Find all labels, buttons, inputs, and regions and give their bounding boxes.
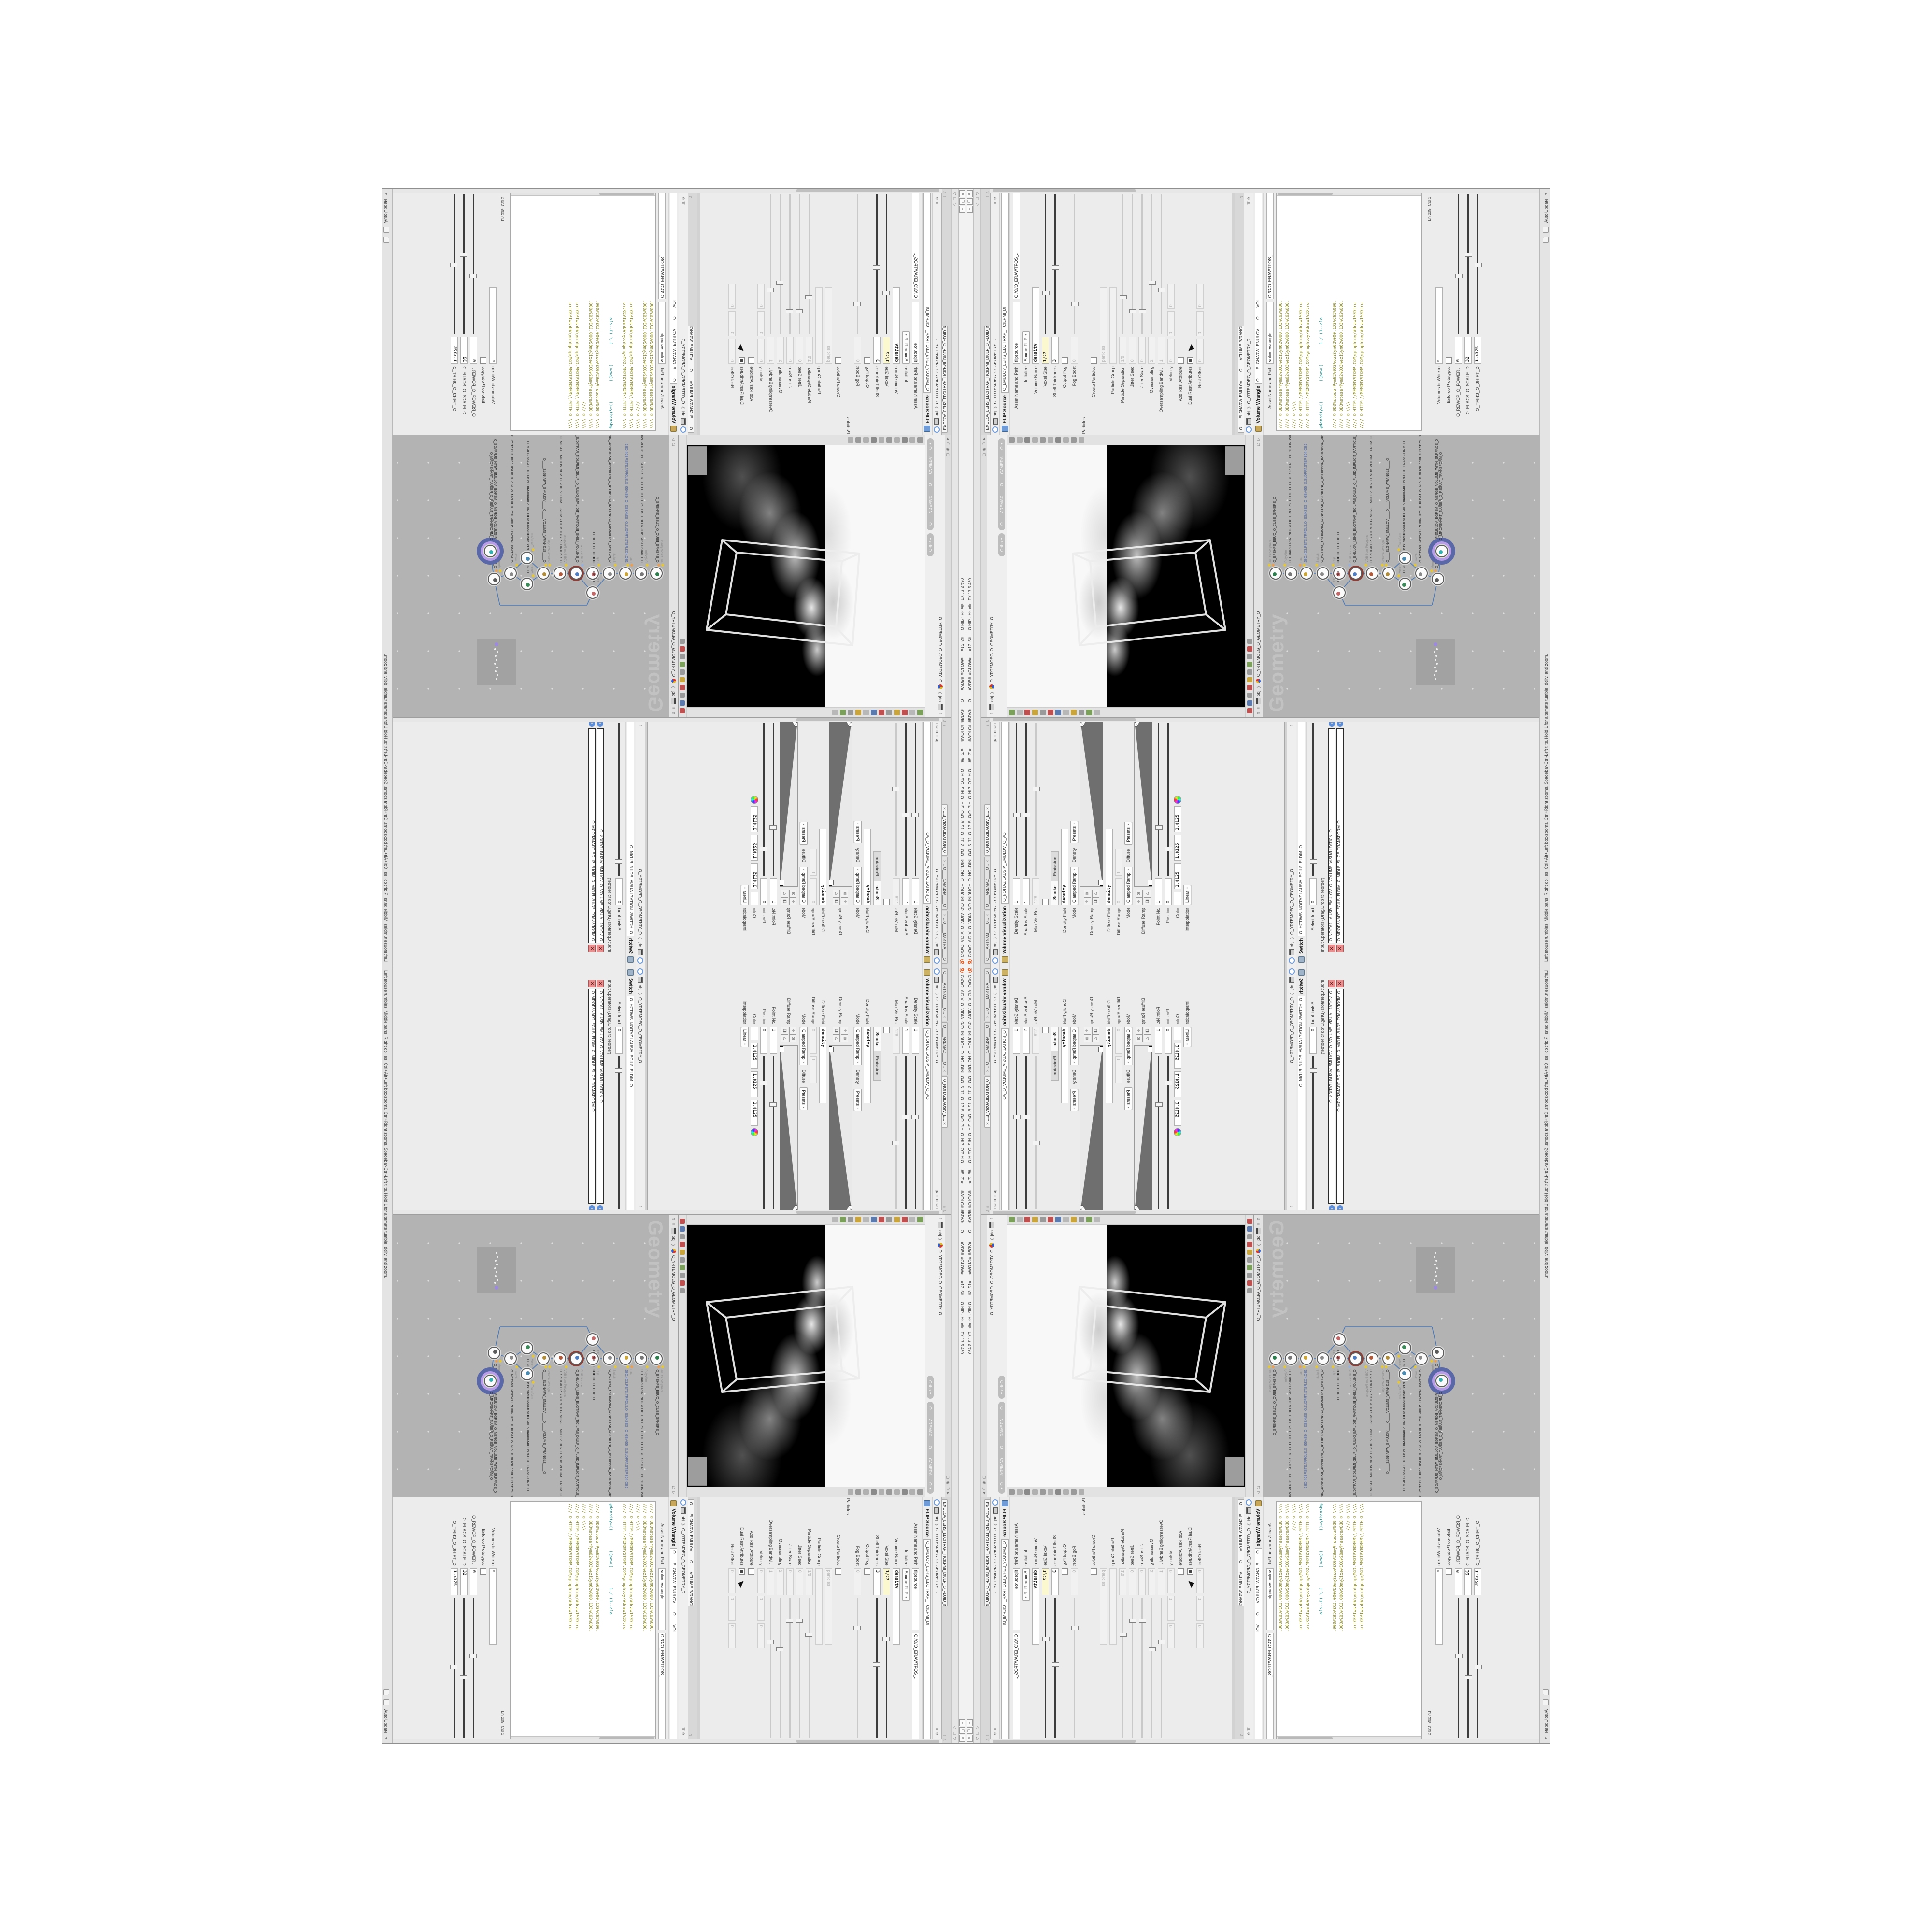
- up-arrow-icon[interactable]: ⇧: [639, 724, 643, 727]
- param-field[interactable]: density: [1106, 1027, 1113, 1103]
- pane-play-icon[interactable]: ▶: [946, 1492, 951, 1494]
- viewport-tool-icon[interactable]: [1032, 710, 1038, 715]
- window-titlebar[interactable]: C:/O/O_AIDIV_O_VIDIA_O/O_INIDUOH_O_HOUDI…: [966, 966, 974, 1743]
- ramp-button[interactable]: ✛: [1084, 897, 1091, 905]
- viewport-tool-icon[interactable]: [863, 1217, 869, 1222]
- param-field[interactable]: 1.8125: [751, 1071, 758, 1097]
- param-field[interactable]: 0: [758, 284, 765, 309]
- window-titlebar[interactable]: C:/O/O_AIDIV_O_VIDIA_O/O_INIDUOH_O_HOUDI…: [958, 966, 966, 1743]
- param-slider[interactable]: [1045, 194, 1046, 334]
- param-field[interactable]: 1: [912, 878, 920, 905]
- viewport-tool-icon[interactable]: [871, 710, 877, 715]
- viewport-playbar-icon[interactable]: [1247, 677, 1252, 682]
- tab-close-icon[interactable]: ✕: [942, 1069, 946, 1072]
- play-icon[interactable]: ▷: [1256, 438, 1261, 440]
- viewport-playbar-icon[interactable]: [1247, 1273, 1252, 1278]
- viewport-playbar-icon[interactable]: [680, 1280, 685, 1286]
- breadcrumb-root[interactable]: obj: [681, 1516, 686, 1521]
- gear-icon[interactable]: ⚙: [1247, 197, 1251, 200]
- camera-pill[interactable]: O____AREMAC____O____CAMERA___O▾: [927, 438, 934, 530]
- viewport-snap-icon[interactable]: [855, 1489, 861, 1495]
- down-arrow-icon[interactable]: ⇩: [672, 1222, 676, 1226]
- breadcrumb-root[interactable]: obj: [989, 1230, 994, 1236]
- ramp-button[interactable]: △: [1092, 1035, 1099, 1042]
- slider-handle[interactable]: [1120, 1633, 1127, 1637]
- slider-handle[interactable]: [615, 1068, 623, 1073]
- search-icon[interactable]: ◌: [993, 735, 997, 737]
- viewport-tool-icon[interactable]: [1048, 710, 1053, 715]
- param-field[interactable]: 0: [1167, 1596, 1175, 1621]
- presets-menu[interactable]: Presets▾: [800, 822, 808, 845]
- param-field[interactable]: 6: [470, 1568, 478, 1595]
- network-node[interactable]: [1300, 567, 1313, 580]
- pin-target-icon[interactable]: [992, 426, 998, 433]
- param-field[interactable]: density: [1032, 1568, 1039, 1645]
- network-node[interactable]: [1366, 567, 1378, 580]
- pane-down-icon[interactable]: ⇩: [942, 191, 946, 194]
- viewport-snap-icon[interactable]: [886, 1489, 892, 1495]
- param-checkbox[interactable]: [749, 1568, 755, 1575]
- slider-handle[interactable]: [1455, 274, 1463, 278]
- param-field[interactable]: 1: [770, 1027, 778, 1054]
- param-field[interactable]: 32: [1464, 337, 1472, 364]
- param-field[interactable]: 0: [1167, 1623, 1175, 1648]
- slider-handle[interactable]: [1139, 1619, 1146, 1623]
- param-field[interactable]: 1.8125: [1174, 863, 1181, 889]
- network-canvas[interactable]: Geometry an_CubeSphereO_EREHPS_EBUC_O_CU…: [392, 435, 669, 717]
- ramp-button[interactable]: ◨: [1092, 1027, 1099, 1035]
- viewport-snap-icon[interactable]: [909, 437, 915, 443]
- ramp-button[interactable]: ⊠: [1136, 1035, 1143, 1042]
- breadcrumb-path[interactable]: O_YRTEMOEG_O_GEOMETRY_O: [1256, 1255, 1261, 1484]
- ramp-button[interactable]: △: [781, 1035, 788, 1042]
- viewport-tool-icon[interactable]: [1040, 1217, 1046, 1222]
- param-field[interactable]: 0: [758, 339, 765, 364]
- pin-target-icon[interactable]: [992, 957, 998, 964]
- param-field[interactable]: 32: [461, 337, 468, 364]
- param-slider[interactable]: [1467, 194, 1469, 334]
- stow-left-icon[interactable]: ◁: [975, 1726, 980, 1729]
- param-slider[interactable]: [790, 1598, 791, 1738]
- slider-handle[interactable]: [796, 1619, 803, 1623]
- viewport-playbar-icon[interactable]: [680, 654, 685, 659]
- ortho-pill[interactable]: Ortho▾: [927, 1376, 934, 1399]
- slider-handle[interactable]: [854, 302, 861, 306]
- slider-handle[interactable]: [786, 1619, 794, 1623]
- ramp-box-handle[interactable]: [1098, 880, 1103, 885]
- param-field[interactable]: 0: [1167, 1568, 1175, 1593]
- layout-icon[interactable]: ❑: [975, 1732, 980, 1735]
- param-menu[interactable]: Linear▾: [741, 1027, 749, 1047]
- viewport-playbar-icon[interactable]: [1247, 1288, 1252, 1293]
- param-slider[interactable]: [770, 194, 772, 334]
- info-icon[interactable]: i: [682, 194, 686, 195]
- breadcrumb-path[interactable]: O_YRTEMOEG_O_GEOMETRY_O: [993, 997, 997, 1189]
- slider-handle[interactable]: [1139, 309, 1146, 313]
- viewport-tool-icon[interactable]: [848, 710, 853, 715]
- param-field[interactable]: 2: [1148, 1568, 1155, 1595]
- param-slider[interactable]: [886, 194, 888, 334]
- viewport-tool-icon[interactable]: [1048, 1217, 1053, 1222]
- param-field[interactable]: particles: [1100, 1568, 1107, 1645]
- gear-icon[interactable]: ⚙: [993, 725, 997, 729]
- param-field[interactable]: flipsource: [1013, 1568, 1020, 1630]
- node-flag-dot[interactable]: [1381, 564, 1384, 567]
- viewport-playbar-icon[interactable]: [1247, 1219, 1252, 1224]
- param-slider[interactable]: [464, 1598, 465, 1738]
- param-field[interactable]: 128: [893, 878, 900, 905]
- viewport-snap-icon[interactable]: [1063, 1489, 1069, 1495]
- ramp-box-handle[interactable]: [1148, 880, 1152, 885]
- slider-handle[interactable]: [1455, 1654, 1463, 1658]
- houdini-help-icon[interactable]: H: [993, 201, 997, 204]
- folder-tab[interactable]: Emission: [874, 1051, 881, 1080]
- viewport-tool-icon[interactable]: [871, 1217, 877, 1222]
- pin-target-icon[interactable]: [681, 426, 687, 433]
- viewport-snap-icon[interactable]: [1071, 437, 1077, 443]
- breadcrumb-root[interactable]: obj: [1289, 985, 1294, 990]
- gear-icon[interactable]: ⚙: [935, 1732, 939, 1735]
- ramp-button[interactable]: ⊠: [1136, 890, 1143, 897]
- info-icon[interactable]: i: [682, 1737, 686, 1738]
- viewport-render-area[interactable]: [687, 1225, 925, 1486]
- ramp-box-handle[interactable]: [1148, 1047, 1152, 1052]
- viewport-tool-icon[interactable]: [1086, 710, 1092, 715]
- viewport-snap-icon[interactable]: [1063, 437, 1069, 443]
- node-flag-dot[interactable]: [630, 564, 633, 567]
- pane-divider[interactable]: [644, 718, 648, 966]
- close-button[interactable]: ✕: [967, 190, 973, 197]
- param-field[interactable]: volumewrangle: [1266, 1568, 1274, 1630]
- param-field[interactable]: *: [490, 1568, 497, 1645]
- node-flag-dot[interactable]: [1272, 564, 1275, 567]
- param-field[interactable]: flipsource: [912, 1568, 920, 1630]
- gear-icon[interactable]: ⚙: [1247, 1732, 1251, 1735]
- param-menu[interactable]: Clamped Ramp▾: [800, 1027, 808, 1065]
- param-field[interactable]: volumewrangle: [659, 302, 666, 364]
- param-field[interactable]: 0: [810, 878, 817, 905]
- param-field[interactable]: C:/O/O_ERAWTFOS_...: [659, 1633, 666, 1740]
- param-slider[interactable]: [1458, 1598, 1459, 1738]
- breadcrumb-path[interactable]: O_YRTEMOEG_O_GEOMETRY_O: [989, 437, 994, 682]
- param-field[interactable]: 0: [1138, 337, 1146, 364]
- node-flag-dot[interactable]: [532, 548, 535, 551]
- viewport-snap-icon[interactable]: [886, 437, 892, 443]
- node-name-field[interactable]: O_HCTIWS_NOITAZILAUSIV_ECILS_ELDIM_O_: [627, 996, 635, 1211]
- param-slider[interactable]: [1132, 194, 1133, 334]
- node-flag-dot[interactable]: [1430, 569, 1433, 572]
- ramp-button[interactable]: ✛: [1136, 897, 1143, 905]
- pin-target-icon[interactable]: [638, 957, 644, 964]
- param-checkbox[interactable]: [1042, 899, 1049, 905]
- param-field[interactable]: 128: [893, 1027, 900, 1054]
- pane-up-icon[interactable]: ⇧: [1239, 195, 1244, 199]
- slider-handle[interactable]: [806, 1633, 813, 1637]
- param-field[interactable]: flipsource: [1013, 302, 1020, 364]
- param-checkbox[interactable]: [1178, 1568, 1184, 1575]
- color-swatch[interactable]: [1174, 892, 1181, 905]
- node-flag-dot[interactable]: [1348, 564, 1351, 567]
- viewport-snap-icon[interactable]: [1040, 437, 1046, 443]
- param-slider[interactable]: [1477, 1598, 1478, 1738]
- ramp-button[interactable]: ◨: [781, 1027, 788, 1035]
- breadcrumb-root[interactable]: obj: [935, 942, 939, 947]
- viewport-playbar-icon[interactable]: [1247, 669, 1252, 675]
- param-field[interactable]: 1.8125: [1174, 1071, 1181, 1097]
- pane-down-icon[interactable]: ⇩: [942, 720, 946, 723]
- slider-handle[interactable]: [902, 813, 909, 817]
- viewport-tool-icon[interactable]: [1055, 1217, 1061, 1222]
- info-icon[interactable]: i: [935, 194, 939, 195]
- minimize-button[interactable]: –: [959, 206, 965, 213]
- slider-handle[interactable]: [854, 1626, 861, 1630]
- ramp-box-handle[interactable]: [829, 880, 834, 885]
- param-field[interactable]: 1.4375: [1474, 1568, 1481, 1595]
- param-checkbox[interactable]: [1187, 1568, 1193, 1575]
- viewport-playbar-icon[interactable]: [680, 1226, 685, 1232]
- pane-pin-icon[interactable]: ☖: [946, 442, 951, 446]
- gear-icon[interactable]: ⚙: [682, 197, 686, 200]
- viewport-playbar-icon[interactable]: [1247, 646, 1252, 652]
- node-flag-dot[interactable]: [548, 564, 551, 567]
- ramp-widget[interactable]: [780, 721, 798, 887]
- node-flag-dot[interactable]: [499, 569, 502, 572]
- slider-handle[interactable]: [615, 859, 623, 864]
- network-node[interactable]: [488, 573, 500, 585]
- folder-tab[interactable]: Emission: [874, 852, 881, 881]
- param-field[interactable]: C:/O/O_ERAWTFOS_...: [912, 1633, 920, 1740]
- param-field[interactable]: 0: [1138, 1568, 1146, 1595]
- vex-snippet-editor[interactable]: //// © 0D3%steserPym62%0D3%eziSym62%000.…: [510, 1501, 656, 1741]
- param-field[interactable]: 0: [854, 337, 862, 364]
- network-node[interactable]: [619, 567, 632, 580]
- param-field[interactable]: 0: [729, 311, 736, 336]
- network-node[interactable]: [1415, 567, 1428, 580]
- slider-handle[interactable]: [1042, 291, 1050, 295]
- viewport-render-area[interactable]: [1007, 1225, 1245, 1486]
- param-field[interactable]: [1109, 1568, 1117, 1645]
- pane-tab[interactable]: EMULOV_LEHS_ELCITRAP_TICILPMI_DIULF_O_FL…: [984, 1499, 990, 1606]
- param-field[interactable]: 1/9: [1119, 1568, 1126, 1595]
- param-field[interactable]: 1: [1155, 878, 1162, 905]
- param-field[interactable]: 1: [1023, 1027, 1030, 1054]
- param-slider[interactable]: [454, 194, 455, 334]
- viewport-tool-icon[interactable]: [848, 1217, 853, 1222]
- network-node[interactable]: [603, 567, 615, 580]
- viewport-snap-icon[interactable]: [1024, 1489, 1030, 1495]
- breadcrumb-root[interactable]: obj: [935, 411, 939, 416]
- gear-icon[interactable]: ⚙: [935, 1203, 939, 1207]
- pane-pin-icon[interactable]: ☖: [982, 1486, 986, 1490]
- network-node[interactable]: [1382, 567, 1395, 580]
- breadcrumb-root[interactable]: obj: [1289, 942, 1294, 947]
- viewport-tool-icon[interactable]: [1009, 710, 1015, 715]
- ramp-button[interactable]: ◨: [1144, 1027, 1151, 1035]
- node-flag-dot[interactable]: [1397, 574, 1400, 577]
- presets-menu[interactable]: Presets▾: [1124, 1087, 1132, 1110]
- ramp-button[interactable]: ⊠: [1084, 890, 1091, 897]
- param-field[interactable]: 1: [1158, 1568, 1165, 1595]
- slider-handle[interactable]: [912, 1115, 919, 1119]
- close-button[interactable]: ✕: [959, 190, 965, 197]
- param-slider[interactable]: [915, 1056, 917, 1209]
- viewport-tool-icon[interactable]: [902, 1217, 908, 1222]
- viewport-tool-icon[interactable]: [1063, 710, 1069, 715]
- slider-handle[interactable]: [470, 1654, 477, 1658]
- viewport-playbar-icon[interactable]: [680, 1250, 685, 1255]
- slider-handle[interactable]: [451, 263, 458, 267]
- pane-square-icon[interactable]: ▢: [946, 453, 951, 457]
- node-flag-dot[interactable]: [1414, 564, 1417, 567]
- stow-left-icon[interactable]: ◁: [953, 1726, 957, 1729]
- node-flag-dot[interactable]: [661, 564, 664, 567]
- param-checkbox[interactable]: [1062, 357, 1068, 364]
- viewport-tool-icon[interactable]: [886, 710, 892, 715]
- ramp-button[interactable]: △: [833, 1035, 840, 1042]
- viewport-snap-icon[interactable]: [1071, 1489, 1077, 1495]
- node-name-field[interactable]: O_HCTIWS_NOITAZILAUSIV_ECILS_ELDIM_O_: [1298, 996, 1305, 1211]
- param-field[interactable]: [1109, 287, 1117, 364]
- node-flag-dot[interactable]: [1332, 564, 1335, 567]
- pane-tab[interactable]: O_NOITAZILAUSIV_E...✕: [984, 1076, 990, 1128]
- param-slider[interactable]: [877, 194, 878, 334]
- tab-close-icon[interactable]: ✕: [986, 1122, 990, 1125]
- param-field[interactable]: 1: [810, 849, 817, 876]
- param-menu[interactable]: Clamped Ramp▾: [854, 867, 862, 905]
- down-arrow-icon[interactable]: ⇩: [1256, 706, 1261, 710]
- param-slider[interactable]: [473, 194, 475, 334]
- param-field[interactable]: C:/O/O_ERAWTFOS_...: [1266, 192, 1274, 299]
- param-checkbox[interactable]: [1187, 357, 1193, 364]
- info-icon[interactable]: i: [993, 723, 997, 724]
- param-field[interactable]: 0: [761, 878, 768, 905]
- tab-close-icon[interactable]: ✕: [986, 914, 990, 917]
- pane-tab[interactable]: O____ARTNAM____O...✕: [984, 911, 990, 964]
- param-field[interactable]: 1.8125: [1174, 1043, 1181, 1069]
- viewport-snap-icon[interactable]: [1009, 1489, 1015, 1495]
- viewport-snap-icon[interactable]: [1032, 437, 1038, 443]
- operator-name-field[interactable]: O_NOITAZILAUSIV_EMULOV_O_VOLUME_VISUALIZ…: [597, 728, 604, 943]
- viewport-tool-icon[interactable]: [909, 1217, 915, 1222]
- slider-handle[interactable]: [1023, 813, 1030, 817]
- viewport-playbar-icon[interactable]: [1247, 685, 1252, 690]
- breadcrumb-root[interactable]: obj: [938, 696, 943, 702]
- viewport-snap-icon[interactable]: [855, 437, 861, 443]
- slider-handle[interactable]: [1158, 288, 1165, 292]
- pane-scrollbar[interactable]: [990, 1739, 1539, 1743]
- breadcrumb-path[interactable]: O_YRTEMOEG_O_GEOMETRY_O: [935, 743, 939, 935]
- param-slider[interactable]: [1141, 1598, 1143, 1738]
- param-field[interactable]: 0: [1129, 1568, 1136, 1595]
- param-field[interactable]: 0: [810, 1027, 817, 1054]
- viewport-playbar-icon[interactable]: [1247, 639, 1252, 644]
- param-menu[interactable]: Clamped Ramp▾: [800, 867, 808, 905]
- param-field[interactable]: C:/O/O_ERAWTFOS_...: [1266, 1633, 1274, 1740]
- pane-scrollbar[interactable]: [990, 189, 1539, 193]
- viewport-playbar-icon[interactable]: [1247, 654, 1252, 659]
- delete-item-icon[interactable]: ✕: [1328, 980, 1335, 987]
- param-field[interactable]: 0: [758, 1623, 765, 1648]
- node-name-field[interactable]: O_HCTIWS_NOITAZILAUSIV_ECILS_ELDIM_O_: [627, 721, 635, 936]
- pane-play-icon[interactable]: ▶: [946, 437, 951, 440]
- viewport-tool-icon[interactable]: [909, 710, 915, 715]
- ramp-button[interactable]: ⊠: [841, 1035, 848, 1042]
- param-slider[interactable]: [1151, 194, 1152, 334]
- pane-scrollbar[interactable]: [393, 1739, 942, 1743]
- tab-close-icon[interactable]: ✕: [986, 1069, 990, 1072]
- breadcrumb-path[interactable]: O_YRTEMOEG_O_GEOMETRY_O: [993, 207, 997, 404]
- viewport-tool-icon[interactable]: [902, 710, 908, 715]
- minimize-button[interactable]: –: [959, 1719, 965, 1726]
- layout-icon[interactable]: ❑: [953, 1732, 957, 1735]
- camera-pill[interactable]: O____AREMAC____O____CAMERA___O▾: [998, 1402, 1005, 1494]
- presets-menu[interactable]: Presets▾: [800, 1087, 808, 1110]
- slider-handle[interactable]: [1310, 859, 1317, 864]
- pane-up-icon[interactable]: ⇧: [986, 195, 990, 199]
- info-icon[interactable]: i: [935, 723, 939, 724]
- param-field[interactable]: [816, 1568, 823, 1645]
- ortho-pill[interactable]: Ortho▾: [927, 533, 934, 556]
- viewport-snap-icon[interactable]: [848, 437, 853, 443]
- param-slider[interactable]: [1141, 194, 1143, 334]
- param-field[interactable]: 0: [729, 339, 736, 364]
- breadcrumb-root[interactable]: obj: [671, 1236, 676, 1241]
- pane-tab[interactable]: O____ELGNARW_EMULOV____O____VOLUME_WRANG…: [688, 1499, 694, 1606]
- param-menu[interactable]: Linear▾: [741, 885, 749, 905]
- ramp-button[interactable]: ◨: [1144, 897, 1151, 905]
- slider-handle[interactable]: [883, 1637, 890, 1641]
- viewport-tool-icon[interactable]: [1079, 1217, 1084, 1222]
- ramp-box-handle[interactable]: [829, 1047, 834, 1052]
- param-field[interactable]: 0: [1165, 1027, 1172, 1054]
- up-arrow-icon[interactable]: ⇧: [1256, 711, 1261, 715]
- pane-play-icon[interactable]: ▶: [982, 1492, 986, 1494]
- slider-handle[interactable]: [902, 1115, 909, 1119]
- pane-tab[interactable]: O_NOITAZILAUSIV_E...✕: [942, 1076, 948, 1128]
- breadcrumb-root[interactable]: obj: [993, 942, 997, 947]
- up-arrow-icon[interactable]: ⇧: [938, 712, 943, 715]
- ramp-box-handle[interactable]: [780, 1047, 784, 1052]
- slider-handle[interactable]: [1023, 1115, 1030, 1119]
- param-field[interactable]: 0: [1309, 1027, 1317, 1054]
- node-name-field[interactable]: O_HCTIWS_NOITAZILAUSIV_ECILS_ELDIM_O_: [1298, 721, 1305, 936]
- slider-handle[interactable]: [873, 265, 881, 270]
- param-field[interactable]: 1: [1155, 1027, 1162, 1054]
- viewport-snap-icon[interactable]: [1032, 1489, 1038, 1495]
- viewport-snap-icon[interactable]: [917, 1489, 923, 1495]
- pin-target-icon[interactable]: [934, 968, 940, 975]
- network-node[interactable]: [1333, 586, 1346, 599]
- node-flag-dot[interactable]: [1364, 564, 1367, 567]
- node-name-field[interactable]: O_EMULOV_LEHS_ELCITRAP_TICILPMI_DI: [1001, 192, 1009, 393]
- close-button[interactable]: ✕: [959, 1735, 965, 1742]
- param-slider[interactable]: [886, 1598, 888, 1738]
- delete-item-icon[interactable]: ✕: [597, 945, 604, 952]
- pane-down-icon[interactable]: ⇩: [942, 1738, 946, 1741]
- viewport-playbar-icon[interactable]: [1247, 700, 1252, 706]
- param-slider[interactable]: [799, 194, 801, 334]
- param-field[interactable]: 0: [1167, 311, 1175, 336]
- param-field[interactable]: 1.4375: [451, 1568, 458, 1595]
- stow-down-icon[interactable]: ▽: [975, 1737, 980, 1740]
- viewport-playbar-icon[interactable]: [680, 1242, 685, 1247]
- param-slider[interactable]: [906, 1056, 907, 1209]
- node-flag-dot[interactable]: [565, 564, 568, 567]
- network-node[interactable]: [1399, 552, 1411, 564]
- param-field[interactable]: 3: [874, 337, 881, 364]
- breadcrumb-root[interactable]: obj: [1246, 1516, 1251, 1521]
- close-button[interactable]: ✕: [967, 1735, 973, 1742]
